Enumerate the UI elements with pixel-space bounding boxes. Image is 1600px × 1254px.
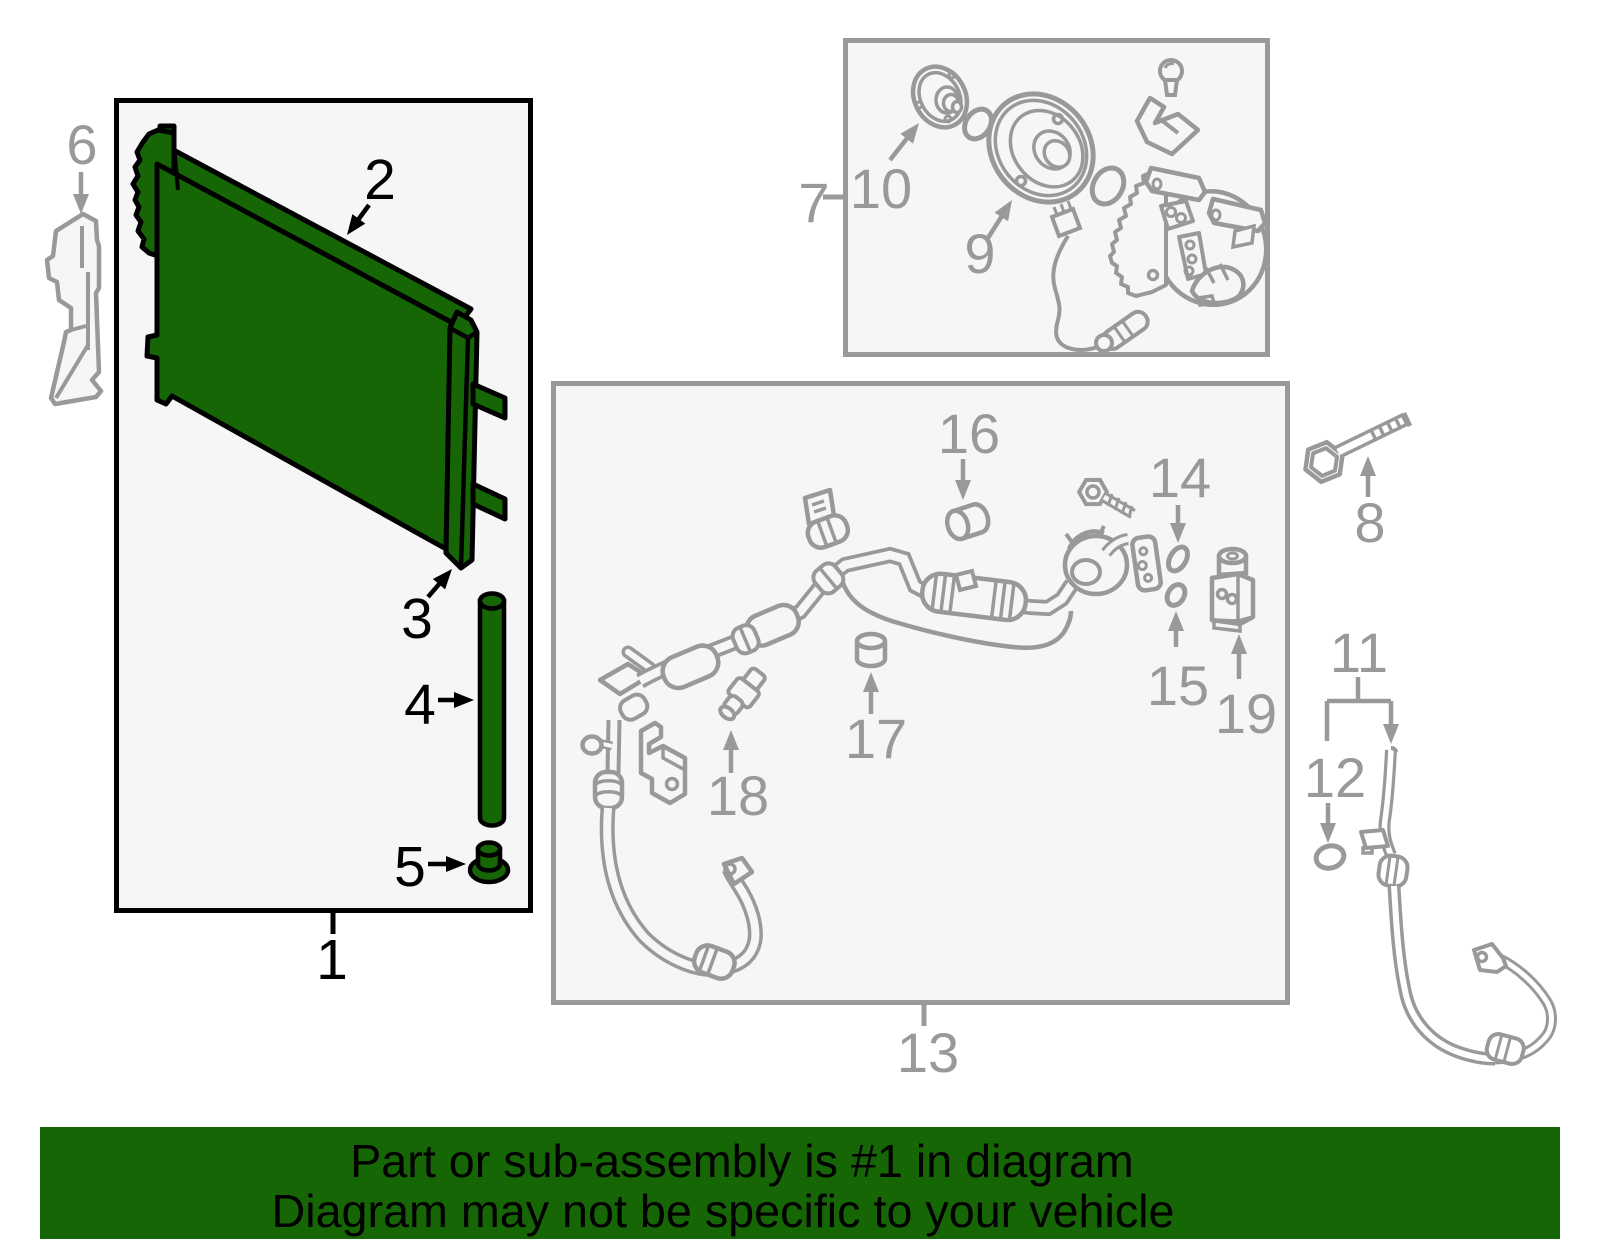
svg-text:2: 2 [364,148,396,212]
svg-text:6: 6 [66,113,97,176]
svg-text:12: 12 [1304,746,1366,809]
svg-text:15: 15 [1147,654,1209,717]
svg-text:5: 5 [394,835,426,899]
svg-text:Part or sub-assembly is #1 in: Part or sub-assembly is #1 in diagram [350,1135,1134,1187]
svg-text:13: 13 [897,1021,959,1084]
svg-text:4: 4 [404,673,436,737]
svg-text:Diagram may not be specific to: Diagram may not be specific to your vehi… [271,1185,1174,1237]
svg-text:19: 19 [1215,682,1277,745]
svg-text:14: 14 [1149,446,1211,509]
svg-text:7: 7 [798,171,829,234]
svg-text:1: 1 [316,928,348,992]
svg-text:18: 18 [707,764,769,827]
svg-text:16: 16 [938,402,1000,465]
svg-text:10: 10 [850,157,912,220]
svg-text:11: 11 [1330,621,1388,684]
svg-text:8: 8 [1354,491,1385,554]
svg-text:17: 17 [845,707,907,770]
